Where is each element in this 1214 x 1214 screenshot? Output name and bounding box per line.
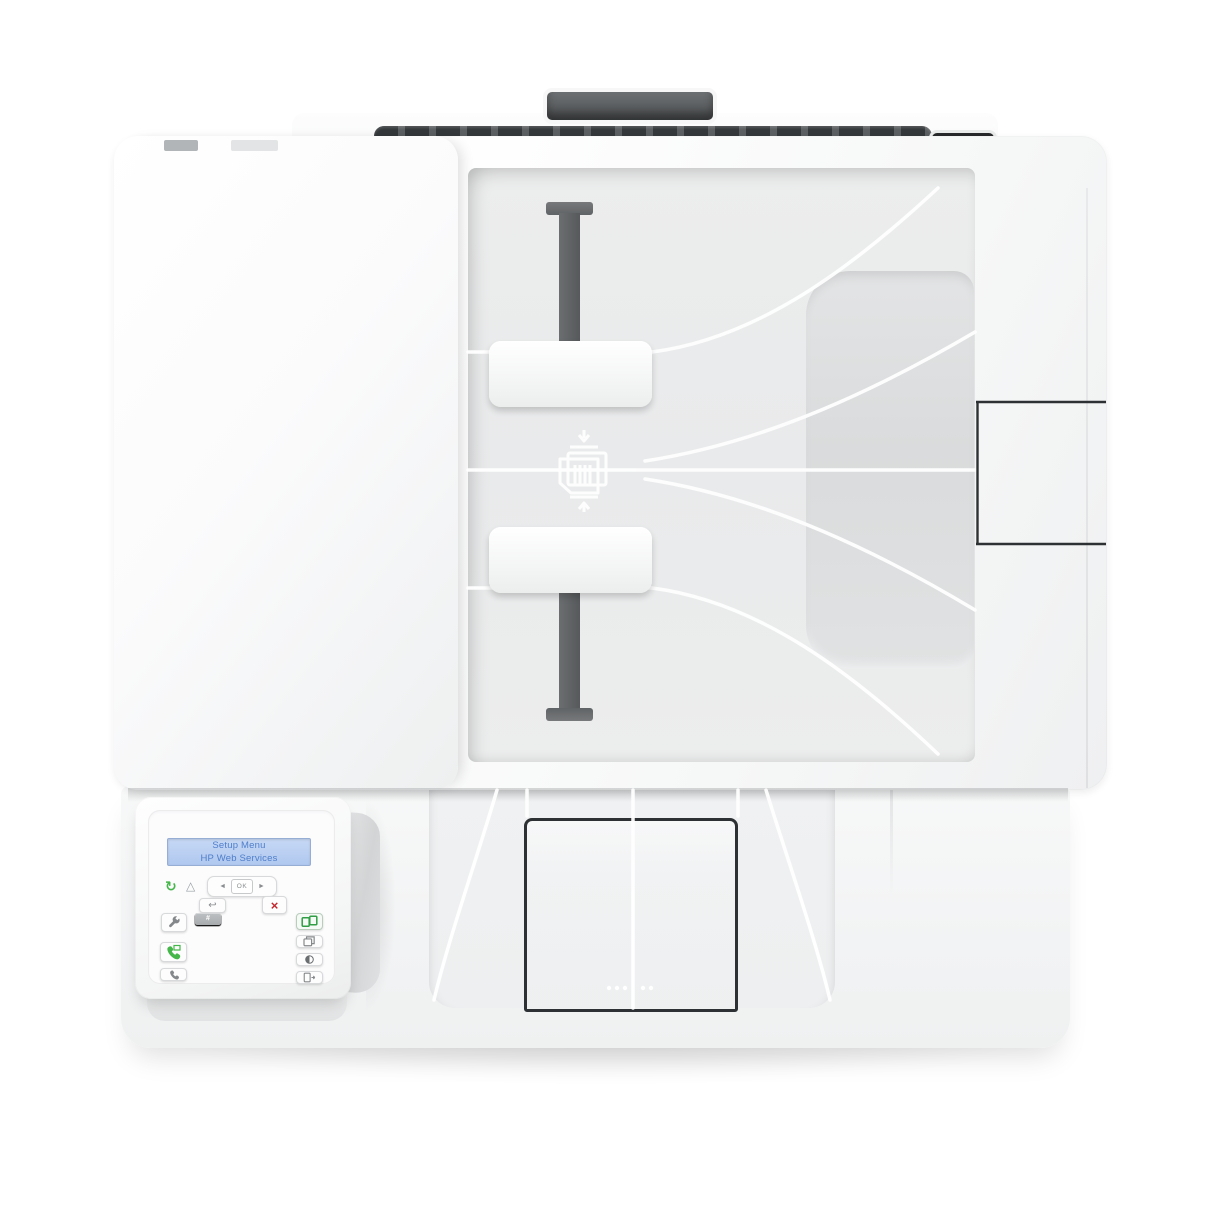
contrast-icon [303,954,316,965]
copies-icon [302,936,317,947]
paper-guide-slider[interactable] [489,341,652,407]
lcd-line-1: Setup Menu [168,839,310,852]
attention-light-icon: △ [186,880,195,893]
nav-cluster: ◄ OK ► [207,876,277,897]
id-copy-icon [301,915,318,928]
wrench-icon [167,915,182,930]
paper-guide-rail [559,213,580,351]
redial-phone-icon [168,969,180,980]
id-copy-button[interactable] [296,913,323,930]
ok-button[interactable]: OK [231,879,253,894]
scanner-lid[interactable] [114,136,458,790]
fax-phone-icon [165,944,182,960]
deck-seam-line [1086,188,1088,788]
carry-handle[interactable] [547,92,713,120]
ready-light-icon: ↻ [165,879,177,893]
number-of-copies-button[interactable] [296,935,323,948]
fax-start-button[interactable] [160,942,187,962]
control-panel: Setup Menu HP Web Services ↻ △ ◄ OK ► ↩ … [133,795,385,1027]
copy-options-button[interactable] [296,971,323,984]
right-arrow-button[interactable]: ► [258,883,265,891]
paper-guide-rail [559,592,580,714]
output-tray-extender-flap[interactable] [524,818,738,1012]
lcd-display: Setup Menu HP Web Services [167,838,311,866]
adf-output-recess [806,271,974,669]
numeric-keypad: 1 2ABC 3DEF 4GHI 5JKL 6MNO 7PQRS 8TUV 9W… [195,913,291,973]
lid-hinge-tab [164,140,198,151]
back-button[interactable]: ↩ [199,898,226,913]
copy-options-icon [302,972,317,983]
load-paper-icon [541,427,627,515]
left-arrow-button[interactable]: ◄ [219,883,226,891]
lcd-line-2: HP Web Services [168,852,310,865]
printer-top-view-photo: Setup Menu HP Web Services ↻ △ ◄ OK ► ↩ … [0,0,1214,1214]
contrast-button[interactable] [296,953,323,966]
lid-hinge-tab [231,140,278,151]
key-hash[interactable]: #, [195,913,221,925]
paper-guide-rail-cap [546,708,593,721]
paper-guide-slider[interactable] [489,527,652,593]
output-tray-seam [890,786,893,896]
redial-button[interactable] [160,968,187,981]
panel-face: Setup Menu HP Web Services ↻ △ ◄ OK ► ↩ … [148,810,335,984]
cancel-button[interactable]: × [262,896,287,914]
setup-button[interactable] [161,913,187,932]
